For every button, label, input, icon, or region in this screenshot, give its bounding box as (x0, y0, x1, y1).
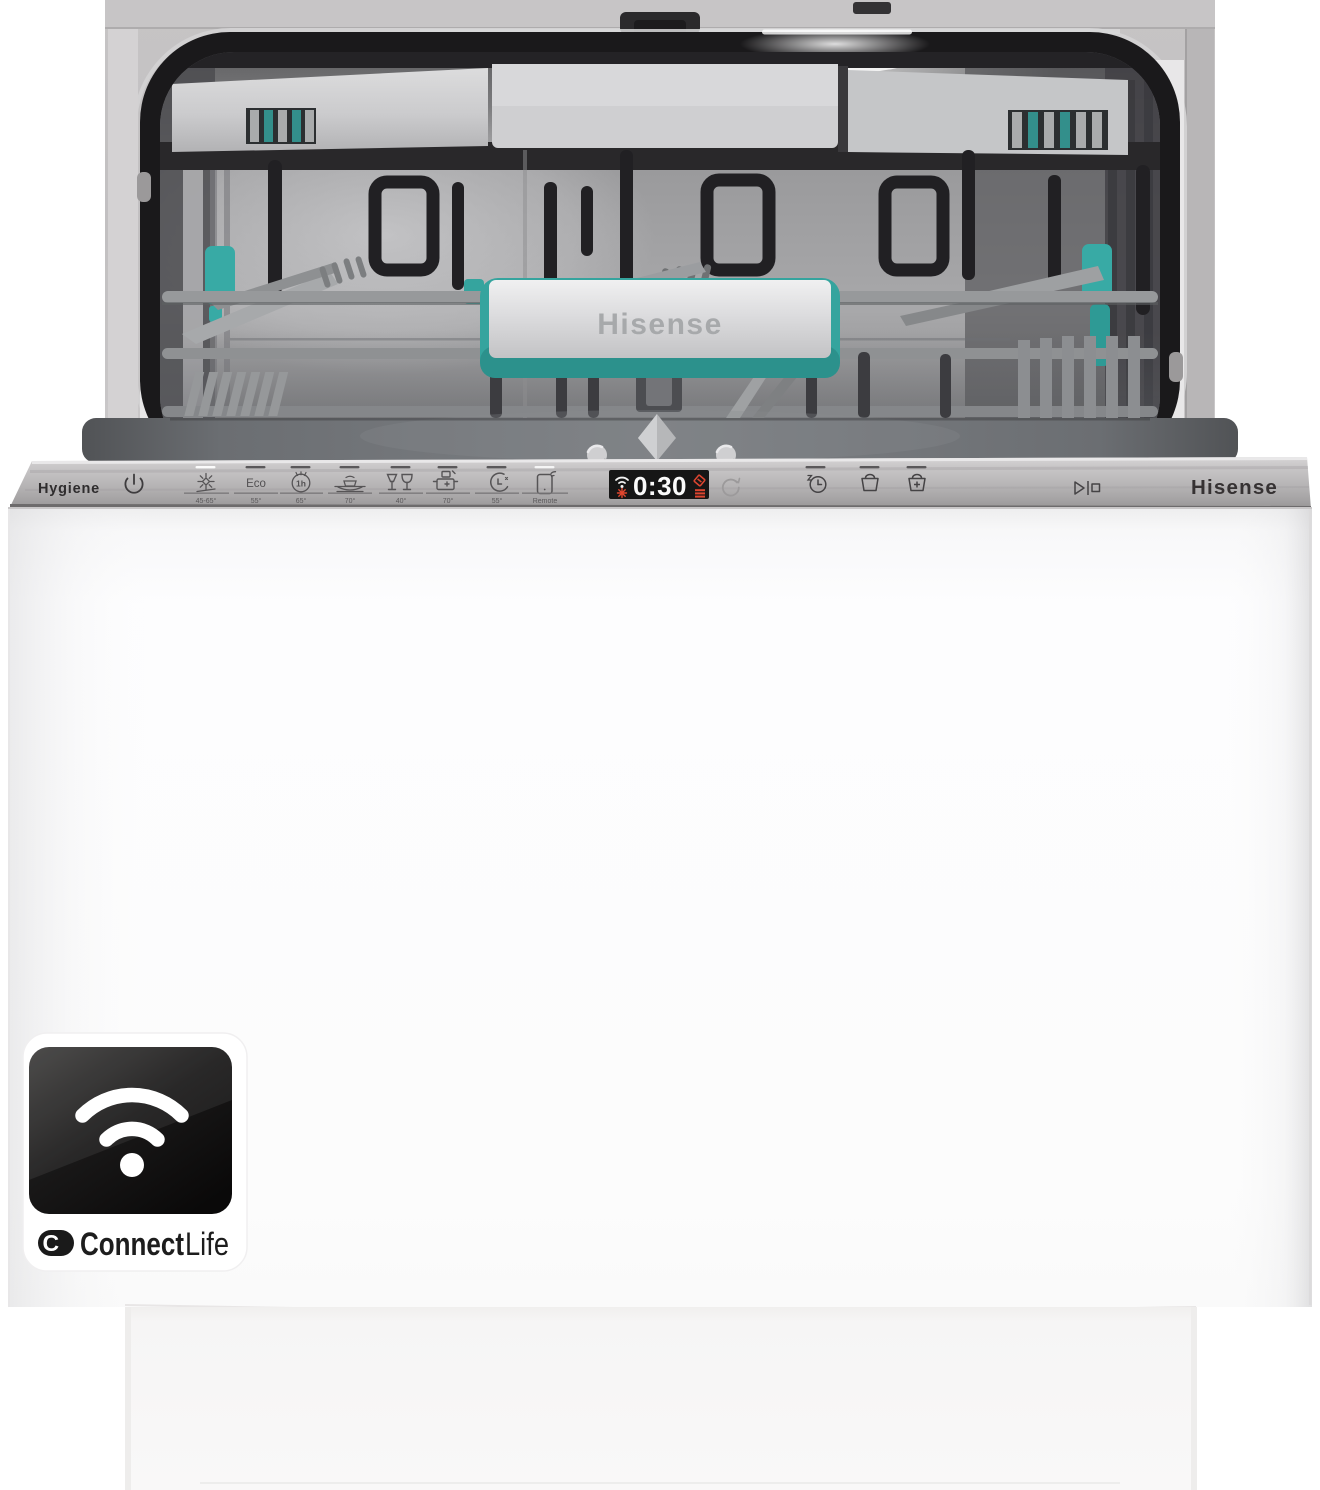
svg-text:Hisense: Hisense (597, 308, 723, 341)
svg-text:Eco: Eco (246, 478, 266, 490)
svg-text:Hisense: Hisense (1191, 476, 1278, 499)
svg-text:0:30: 0:30 (633, 471, 687, 501)
svg-text:65°: 65° (296, 497, 307, 505)
svg-text:Life: Life (185, 1226, 229, 1262)
svg-text:70°: 70° (345, 497, 356, 505)
svg-text:40°: 40° (396, 497, 407, 505)
svg-text:C: C (43, 1230, 60, 1256)
svg-text:1h: 1h (296, 479, 306, 489)
svg-text:55°: 55° (251, 497, 262, 505)
svg-text:45-65°: 45-65° (196, 497, 217, 505)
svg-text:Hygiene: Hygiene (38, 481, 100, 497)
svg-text:55°: 55° (492, 497, 503, 505)
svg-text:Connect: Connect (80, 1226, 184, 1262)
svg-text:Remote: Remote (533, 498, 558, 505)
svg-text:70°: 70° (443, 497, 454, 505)
